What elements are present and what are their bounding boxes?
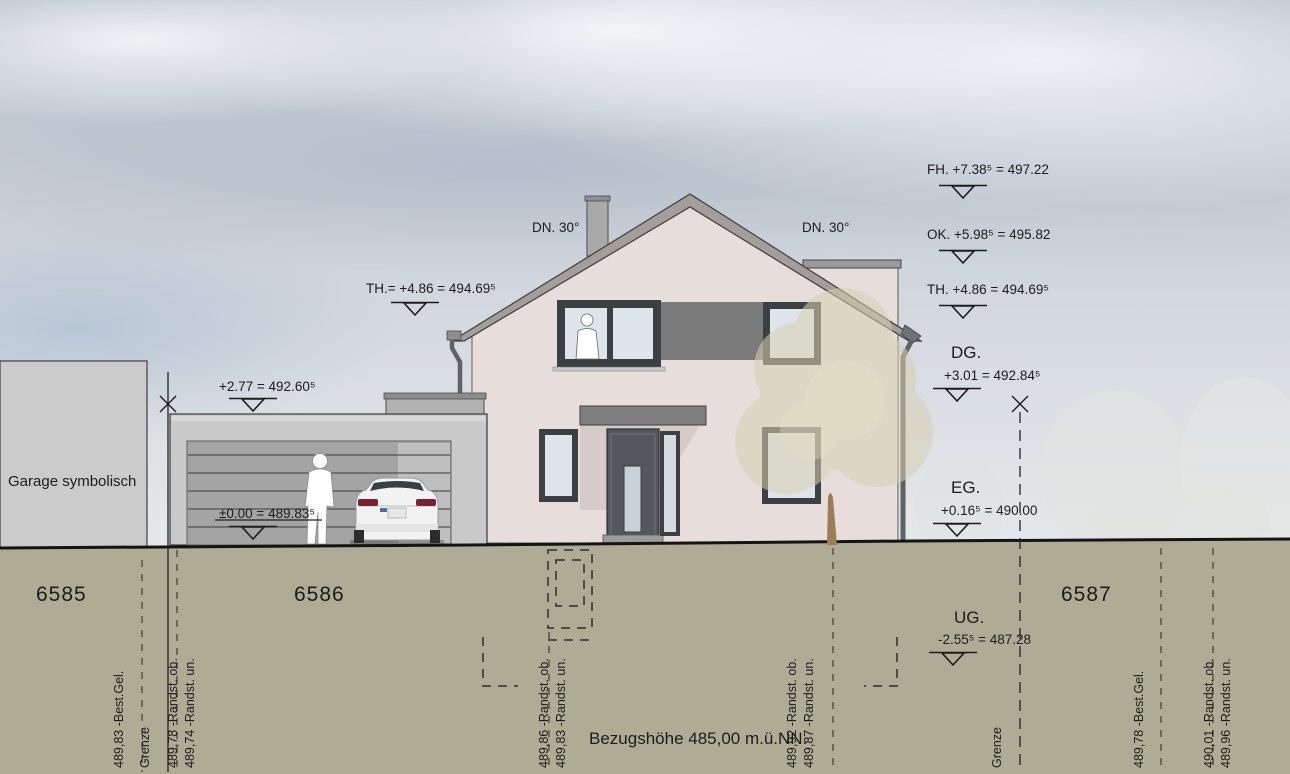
level-marker-icon	[928, 651, 978, 666]
parcel-number-6585: 6585	[36, 583, 87, 607]
level-marker-icon	[938, 304, 988, 319]
level-th-right: TH. +4.86 = 494.69⁵	[927, 282, 1049, 298]
survey-label-left-randst-ob: 489,78 -Randst. ob.	[167, 658, 180, 768]
survey-label-mid-right-randst-ob: 489,92 -Randst. ob.	[786, 658, 799, 768]
neighbor-garage	[0, 361, 147, 548]
level-garage-roof: +2.77 = 492.60⁵	[219, 379, 315, 395]
boundary-x-mark-right	[1012, 396, 1028, 412]
reference-height-note: Bezugshöhe 485,00 m.ü.NN.	[589, 729, 807, 749]
gf-window-left	[539, 429, 578, 502]
neighbor-garage-label: Garage symbolisch	[8, 473, 136, 490]
boundary-x-mark-left	[160, 396, 176, 412]
level-marker-icon	[938, 184, 988, 199]
level-eg-label: EG.	[951, 478, 980, 498]
roof-pitch-left: DN. 30°	[532, 220, 579, 236]
level-ok: OK. +5.98⁵ = 495.82	[927, 227, 1050, 243]
boundary-label-left: Grenze	[139, 727, 152, 768]
entry-door	[603, 429, 663, 545]
level-eg-value: +0.16⁵ = 490.00	[941, 503, 1037, 519]
survey-label-left-best-gel: 489,83 -Best.Gel.	[113, 671, 126, 768]
level-marker-icon	[228, 525, 278, 540]
level-dg-label: DG.	[951, 343, 981, 363]
parcel-number-6586: 6586	[294, 583, 345, 607]
entry-canopy	[580, 406, 706, 425]
level-marker-icon	[390, 301, 440, 316]
survey-label-right-randst-un: 489,96 -Randst. un.	[1220, 658, 1233, 768]
level-th-left: TH.= +4.86 = 494.69⁵	[366, 281, 496, 297]
level-garage-floor: ±0.00 = 489.83⁵	[219, 506, 315, 522]
level-fh: FH. +7.38⁵ = 497.22	[927, 162, 1049, 178]
survey-label-left-randst-un: 489,74 -Randst. un.	[184, 658, 197, 768]
level-marker-icon	[932, 522, 982, 537]
boundary-label-right: Grenze	[991, 727, 1004, 768]
connector-roof	[384, 393, 486, 415]
parcel-number-6587: 6587	[1061, 583, 1112, 607]
level-ug-label: UG.	[954, 608, 984, 628]
door-sidelight	[660, 431, 680, 536]
survey-label-mid-left-randst-ob: 489,86 -Randst. ob.	[538, 658, 551, 768]
survey-label-mid-left-randst-un: 489,83 -Randst. un.	[555, 658, 568, 768]
level-marker-icon	[228, 397, 278, 412]
level-marker-icon	[932, 387, 982, 402]
roof-pitch-right: DN. 30°	[802, 220, 849, 236]
survey-label-right-best-gel: 489,78 -Best.Gel.	[1133, 671, 1146, 768]
survey-label-mid-right-randst-un: 489,87 -Randst. un.	[803, 658, 816, 768]
garage	[170, 414, 487, 545]
elevation-drawing: Garage symbolisch TH.= +4.86 = 494.69⁵ +…	[0, 0, 1290, 774]
level-ug-value: -2.55⁵ = 487.28	[938, 632, 1031, 648]
level-dg-value: +3.01 = 492.84⁵	[944, 368, 1040, 384]
level-marker-icon	[938, 249, 988, 264]
upper-window-left	[553, 300, 665, 371]
survey-label-right-randst-ob: 490,01 -Randst. ob.	[1203, 658, 1216, 768]
